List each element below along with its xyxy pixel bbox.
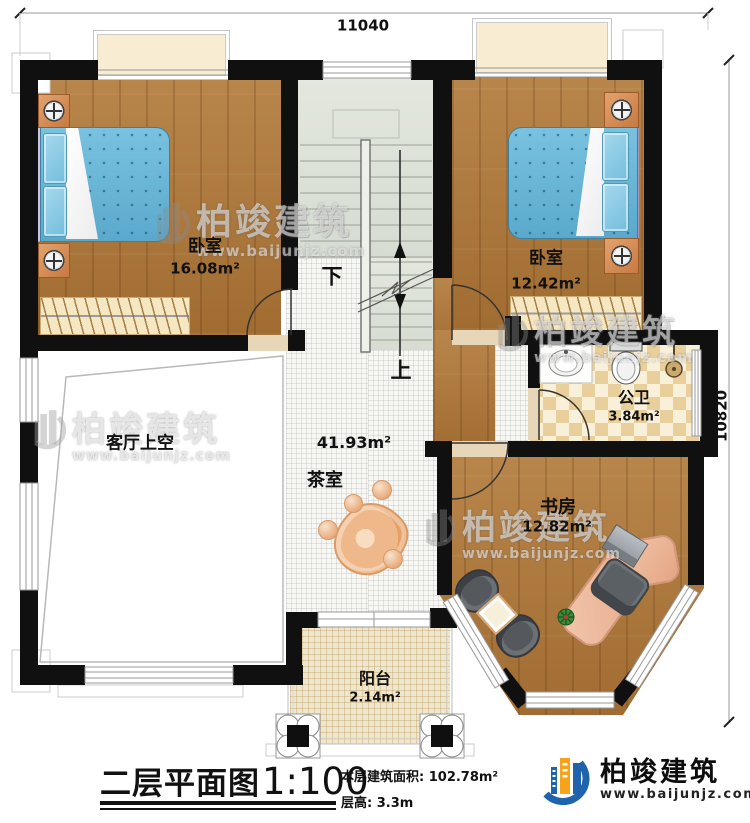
pillow	[602, 183, 629, 232]
corridor-floor	[433, 330, 495, 455]
bay-window-left	[93, 30, 230, 80]
stair-landing-floor	[298, 78, 433, 260]
room-label-study: 书房	[540, 499, 576, 517]
brand-logo: 柏竣建筑 www.baijunjz.com	[538, 750, 750, 810]
drawing-title-text: 二层平面图	[100, 758, 260, 803]
room-area-tea-room: 41.93m²	[317, 435, 391, 451]
pillow	[43, 186, 67, 237]
nightstand-lamp	[604, 238, 639, 274]
bathroom-entry-floor	[495, 345, 528, 455]
drawing-title: 二层平面图1:100	[100, 758, 369, 803]
dimension-right: 10820	[715, 390, 730, 442]
nightstand-lamp	[38, 243, 70, 278]
room-area-study: 12.82m²	[522, 520, 592, 535]
pillow	[43, 133, 67, 184]
brand-logo-icon	[538, 750, 592, 810]
pebble	[372, 480, 392, 500]
room-label-bathroom: 公卫	[618, 390, 650, 406]
room-area-bathroom: 3.84m²	[608, 411, 659, 424]
room-area-balcony: 2.14m²	[349, 692, 400, 705]
nightstand-lamp	[604, 92, 639, 128]
brand-name: 柏竣建筑	[600, 758, 750, 788]
room-label-bedroom-right: 卧室	[529, 251, 563, 268]
title-underline	[100, 801, 336, 805]
floor-area-note: 本层建筑面积: 102.78m²	[341, 766, 498, 785]
wardrobe-left	[40, 297, 190, 335]
brand-url: www.baijunjz.com	[600, 787, 750, 802]
floor-height-note: 层高: 3.3m	[341, 792, 413, 811]
room-label-tea-room: 茶室	[307, 472, 343, 490]
stair-up-label: 上	[391, 361, 412, 382]
room-area-bedroom-right: 12.42m²	[511, 277, 581, 292]
pillow	[602, 132, 629, 181]
title-underline-thin	[100, 808, 336, 810]
wardrobe-right	[510, 296, 642, 331]
room-label-balcony: 阳台	[359, 671, 391, 687]
room-label-bedroom-left: 卧室	[188, 239, 222, 256]
dimension-top: 11040	[337, 19, 389, 34]
stair-down-label: 下	[322, 267, 343, 288]
pebble	[383, 549, 403, 569]
floor-plan-canvas: 柏竣建筑 www.baijunjz.com 柏竣建筑 www.baijunjz.…	[0, 0, 750, 823]
nightstand-lamp	[38, 94, 70, 128]
bay-window-right	[472, 18, 612, 77]
pebble	[344, 494, 363, 513]
room-label-living-void: 客厅上空	[106, 436, 174, 453]
stair-flight-floor	[366, 258, 433, 354]
pebble	[318, 520, 338, 540]
void-outline	[40, 356, 283, 662]
room-area-bedroom-left: 16.08m²	[170, 262, 240, 277]
watermark-logo-icon	[28, 406, 66, 460]
